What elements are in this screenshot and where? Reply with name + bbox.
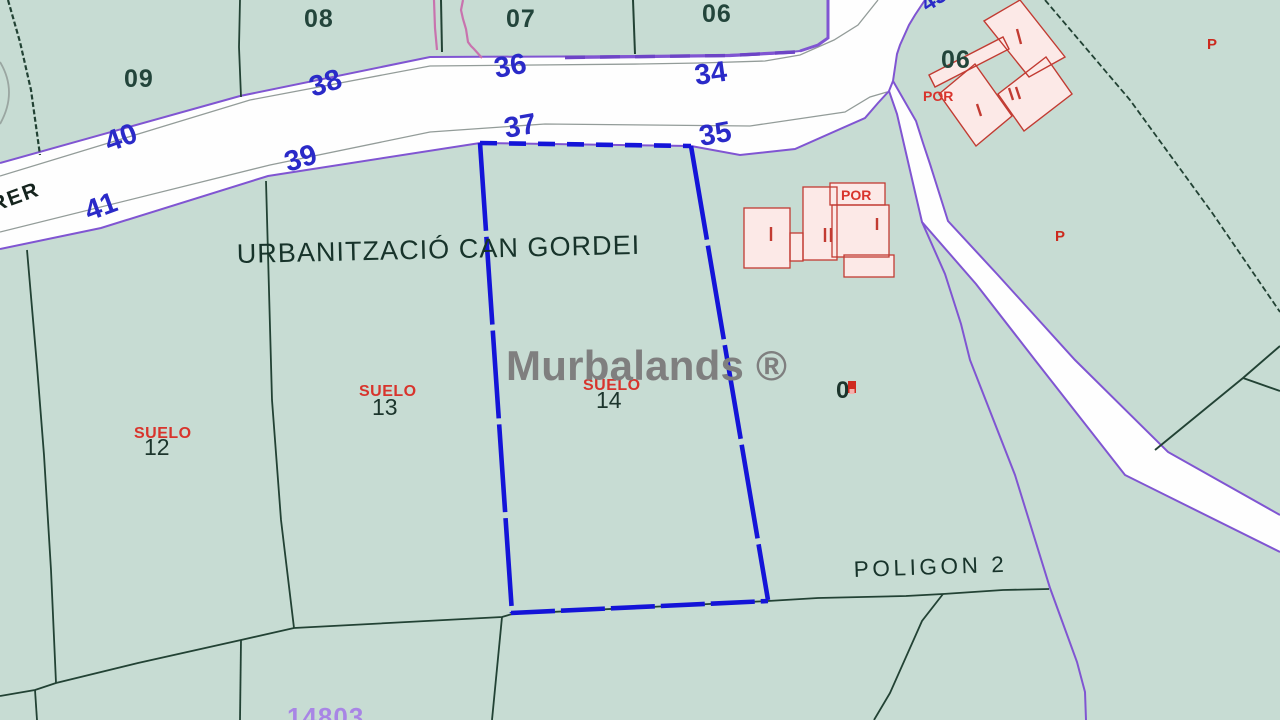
svg-text:14: 14 — [596, 387, 622, 413]
svg-text:06: 06 — [941, 46, 971, 74]
svg-text:34: 34 — [693, 56, 729, 92]
svg-text:07: 07 — [506, 5, 536, 33]
svg-text:09: 09 — [124, 65, 154, 93]
svg-text:13: 13 — [372, 394, 398, 420]
svg-text:08: 08 — [304, 5, 334, 33]
svg-text:06: 06 — [702, 0, 732, 28]
svg-text:37: 37 — [502, 108, 539, 145]
svg-text:35: 35 — [697, 116, 734, 153]
svg-text:0: 0 — [836, 377, 849, 404]
svg-text:12: 12 — [144, 434, 170, 460]
svg-text:POR: POR — [841, 187, 871, 203]
svg-text:P: P — [1207, 36, 1217, 53]
svg-text:POR: POR — [923, 88, 953, 104]
svg-text:14803: 14803 — [287, 702, 364, 720]
svg-text:36: 36 — [492, 48, 529, 85]
svg-text:Murbalands ®: Murbalands ® — [506, 342, 787, 389]
svg-text:P: P — [1055, 228, 1065, 245]
